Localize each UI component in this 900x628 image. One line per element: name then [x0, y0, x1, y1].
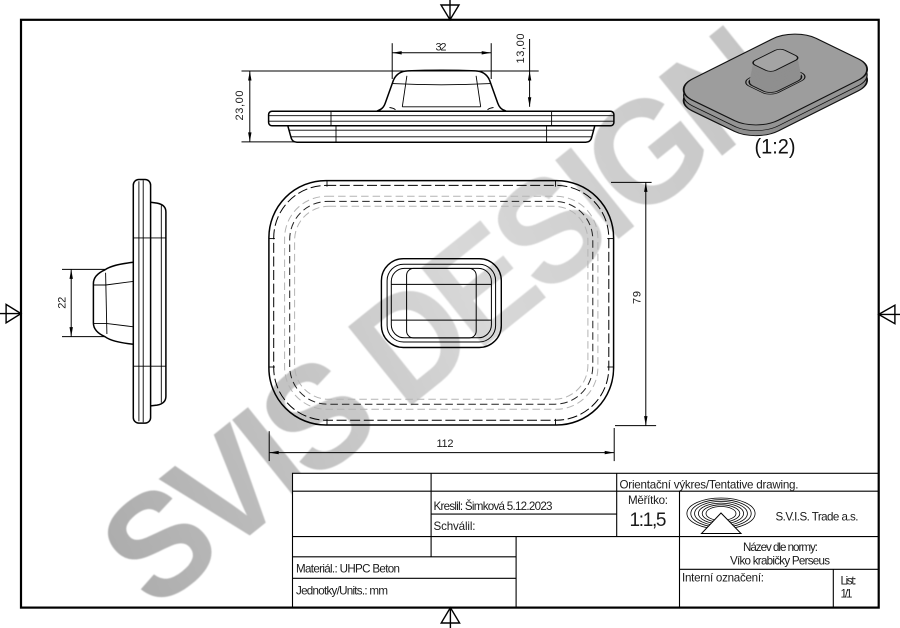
svg-text:Schválil:: Schválil: — [434, 520, 476, 533]
svg-text:Měřítko:: Měřítko: — [628, 494, 668, 507]
svg-text:1:1,5: 1:1,5 — [630, 510, 667, 531]
svg-text:Orientační výkres/Tentative dr: Orientační výkres/Tentative drawing. — [620, 479, 799, 492]
svg-text:Interní označení:: Interní označení: — [682, 572, 764, 585]
svg-text:Jednotky/Units.: mm: Jednotky/Units.: mm — [296, 585, 388, 598]
svg-text:Víko krabičky Perseus: Víko krabičky Perseus — [730, 555, 830, 568]
svg-text:79: 79 — [632, 291, 644, 304]
svg-text:1/1: 1/1 — [841, 588, 853, 601]
svg-text:Materiál.: UHPC Beton: Materiál.: UHPC Beton — [296, 563, 400, 576]
svg-text:Kreslil: Šimková 5.12.2023: Kreslil: Šimková 5.12.2023 — [434, 500, 553, 513]
svg-text:(1:2): (1:2) — [755, 136, 796, 159]
svg-text:S.V.I.S. Trade a.s.: S.V.I.S. Trade a.s. — [776, 511, 859, 524]
svg-text:23,00: 23,00 — [234, 90, 246, 120]
svg-text:112: 112 — [437, 438, 454, 450]
svg-text:13,00: 13,00 — [515, 34, 527, 64]
svg-text:List:: List: — [841, 575, 857, 588]
svg-text:32: 32 — [436, 42, 447, 54]
svg-text:Název dle normy:: Název dle normy: — [743, 541, 818, 554]
svg-text:22: 22 — [56, 297, 68, 309]
